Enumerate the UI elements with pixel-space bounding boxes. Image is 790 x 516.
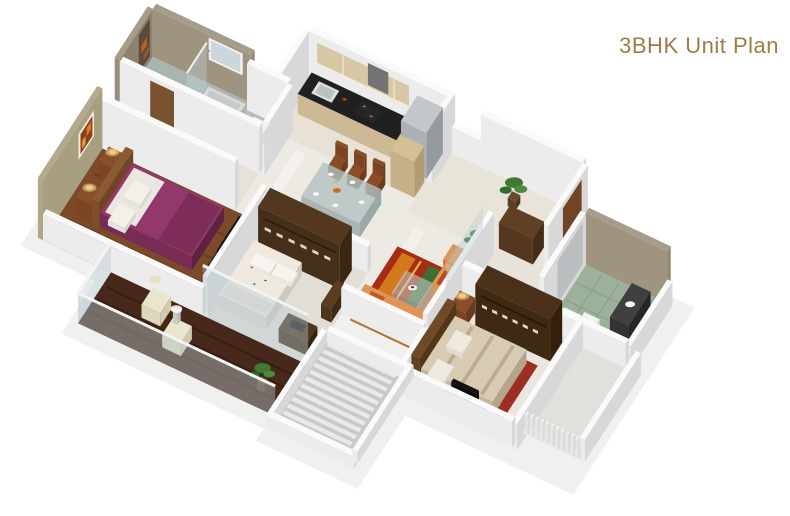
floor-plan-render	[0, 0, 790, 516]
